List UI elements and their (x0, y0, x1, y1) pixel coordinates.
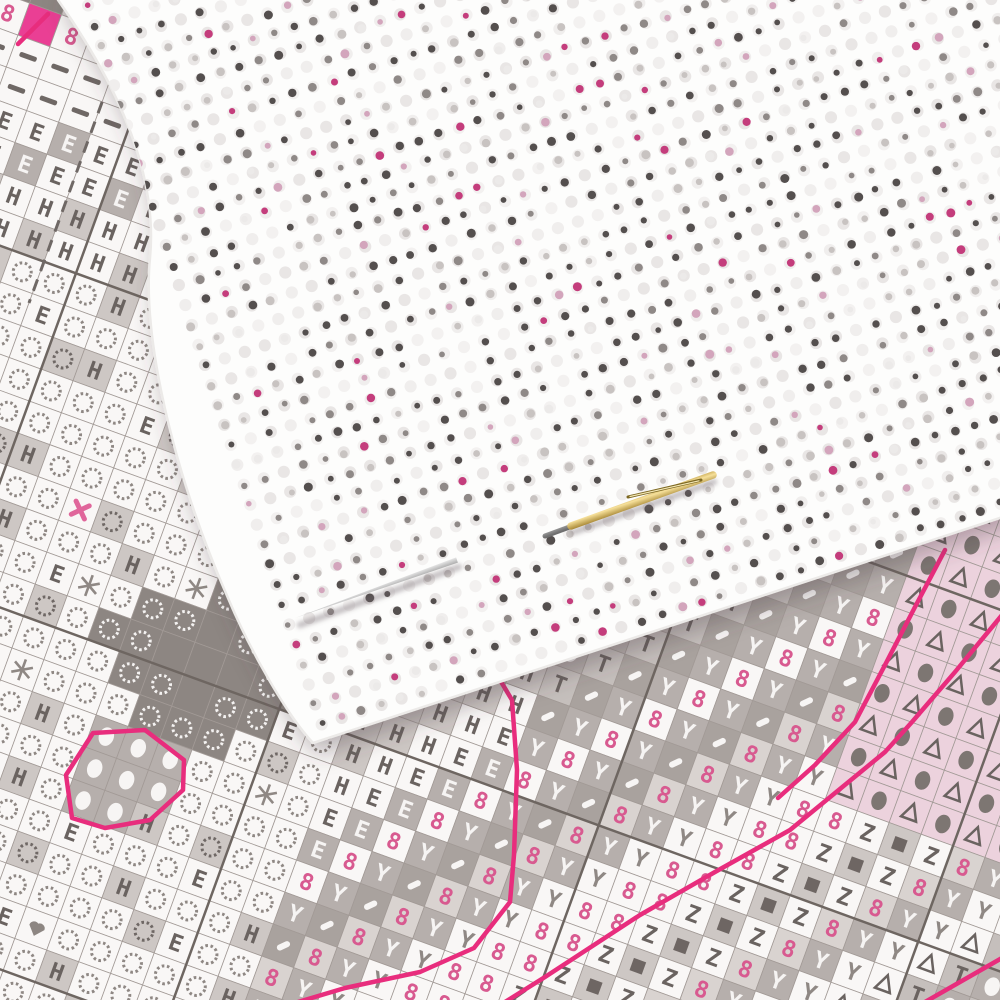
hole-content-dot (759, 244, 767, 252)
canvas-hole (285, 419, 297, 431)
canvas-hole (318, 386, 330, 398)
hole-content-dot (318, 653, 326, 661)
hole-content-dot (715, 39, 723, 47)
hole-content-dot (576, 570, 585, 579)
canvas-hole (449, 587, 461, 599)
hole-content-dot (821, 93, 828, 100)
hole-content-dot (467, 229, 476, 238)
hole-content-dot (602, 165, 610, 173)
hole-content-dot (989, 415, 998, 424)
hole-content-dot (757, 314, 765, 322)
hole-content-dot (905, 355, 911, 361)
hole-content-dot (698, 599, 705, 606)
hole-content-dot (527, 409, 535, 417)
canvas-hole (610, 402, 622, 414)
hole-content-dot (355, 488, 362, 495)
canvas-hole (895, 464, 907, 476)
canvas-hole (929, 364, 941, 376)
hole-content-dot (752, 290, 761, 299)
hole-content-dot (326, 342, 333, 349)
canvas-hole (890, 311, 902, 323)
hole-content-dot (232, 460, 241, 469)
hole-content-dot (911, 438, 920, 447)
hole-content-dot (364, 43, 371, 50)
hole-content-dot (554, 156, 562, 164)
hole-content-dot (799, 230, 808, 239)
hole-content-dot (236, 129, 245, 138)
hole-content-dot (241, 483, 247, 489)
hole-content-dot (917, 325, 925, 333)
hole-content-dot (812, 273, 821, 282)
canvas-hole (464, 361, 476, 373)
canvas-hole (434, 62, 446, 74)
hole-content-dot (501, 465, 508, 472)
canvas-hole (245, 432, 257, 444)
hole-content-dot (576, 85, 584, 93)
hole-content-dot (972, 20, 980, 28)
hole-content-dot (223, 87, 231, 95)
hole-content-dot (717, 593, 723, 599)
hole-content-dot (625, 577, 631, 583)
hole-content-dot (571, 418, 578, 425)
hole-content-dot (893, 179, 901, 187)
canvas-hole (545, 202, 557, 214)
hole-content-dot (429, 308, 436, 315)
hole-content-dot (598, 627, 607, 636)
hole-content-dot (315, 170, 323, 178)
hole-content-dot (427, 442, 434, 449)
canvas-hole (772, 151, 784, 163)
hole-content-dot (923, 415, 932, 424)
hole-content-dot (813, 140, 820, 147)
canvas-hole (892, 45, 904, 57)
hole-content-dot (648, 107, 656, 115)
hole-content-dot (870, 519, 876, 525)
hole-content-dot (337, 581, 345, 589)
hole-content-dot (504, 615, 512, 623)
hole-content-dot (377, 19, 383, 25)
canvas-hole (291, 506, 303, 518)
hole-content-dot (249, 301, 258, 310)
hole-content-dot (394, 75, 402, 83)
hole-content-dot (507, 484, 515, 492)
hole-content-dot (686, 92, 694, 100)
canvas-hole (838, 151, 850, 163)
hole-content-dot (620, 358, 628, 366)
hole-content-dot (822, 162, 828, 168)
canvas-hole (281, 67, 293, 79)
hole-content-dot (354, 221, 363, 230)
hole-content-dot (360, 311, 368, 319)
hole-content-dot (153, 1, 159, 7)
hole-content-dot (420, 624, 427, 631)
hole-content-dot (356, 706, 365, 715)
hole-content-dot (118, 36, 124, 42)
hole-content-dot (461, 541, 468, 548)
hole-content-dot (501, 197, 507, 203)
hole-content-dot (168, 130, 176, 138)
hole-content-dot (700, 396, 707, 403)
hole-content-dot (966, 267, 975, 276)
hole-content-dot (887, 425, 893, 431)
canvas-hole (565, 196, 577, 208)
hole-content-dot (543, 253, 549, 259)
canvas-hole (445, 235, 457, 247)
hole-content-dot (221, 421, 229, 429)
hole-content-dot (520, 257, 527, 264)
canvas-hole (783, 390, 795, 402)
hole-content-dot (637, 483, 645, 491)
canvas-hole (876, 404, 888, 416)
hole-content-dot (828, 312, 835, 319)
hole-content-dot (399, 362, 405, 368)
canvas-hole (717, 323, 729, 335)
hole-content-dot (989, 194, 995, 200)
hole-content-dot (847, 307, 853, 313)
hole-content-dot (262, 409, 269, 416)
hole-content-dot (746, 274, 753, 281)
hole-content-dot (320, 257, 328, 265)
hole-content-dot (809, 55, 815, 61)
hole-content-dot (713, 238, 720, 245)
hole-content-dot (664, 15, 670, 21)
hole-content-dot (443, 151, 451, 159)
hole-content-dot (319, 587, 325, 593)
hole-content-dot (530, 144, 538, 152)
canvas-hole (444, 367, 456, 379)
hole-content-dot (350, 271, 356, 277)
hole-content-dot (480, 206, 487, 213)
hole-content-dot (664, 363, 673, 372)
hole-content-dot (280, 536, 288, 544)
hole-content-dot (811, 538, 817, 544)
hole-content-dot (302, 194, 311, 203)
canvas-hole (495, 660, 507, 672)
canvas-hole (684, 289, 696, 301)
canvas-hole (576, 501, 588, 513)
hole-content-dot (705, 152, 714, 161)
canvas-hole (405, 380, 417, 392)
hole-content-dot (599, 364, 607, 372)
canvas-hole (264, 492, 276, 504)
hole-content-dot (360, 442, 369, 451)
hole-content-dot (895, 534, 904, 543)
canvas-hole (825, 111, 837, 123)
hole-content-dot (610, 603, 616, 609)
hole-content-dot (422, 89, 431, 98)
canvas-hole (737, 316, 749, 328)
canvas-hole (254, 120, 266, 132)
hole-content-dot (622, 158, 628, 164)
canvas-hole (323, 672, 335, 684)
hole-content-dot (707, 217, 715, 225)
canvas-hole (845, 38, 857, 50)
canvas-hole (819, 25, 831, 37)
canvas-hole (379, 234, 391, 246)
hole-content-dot (361, 507, 367, 513)
canvas-hole (279, 266, 291, 278)
hole-content-dot (85, 2, 91, 8)
hole-content-dot (247, 167, 254, 174)
hole-content-dot (635, 264, 643, 272)
hole-content-dot (648, 306, 656, 314)
hole-content-dot (314, 570, 321, 577)
hole-content-dot (169, 61, 176, 68)
hole-content-dot (514, 371, 521, 378)
hole-content-dot (314, 234, 322, 242)
hole-content-dot (387, 388, 395, 396)
hole-content-dot (841, 88, 849, 96)
hole-content-dot (877, 57, 883, 63)
canvas-hole (525, 275, 537, 287)
plastic-canvas-layer (0, 0, 1000, 1000)
hole-content-dot (559, 244, 567, 252)
hole-content-dot (809, 123, 815, 129)
hole-content-dot (332, 693, 339, 700)
canvas-hole (225, 372, 237, 384)
hole-content-dot (540, 317, 547, 324)
canvas-hole (744, 336, 756, 348)
hole-content-dot (864, 433, 873, 442)
canvas-hole (849, 390, 861, 402)
canvas-hole (610, 468, 622, 480)
canvas-hole (863, 364, 875, 376)
canvas-hole (427, 108, 439, 120)
hole-content-dot (395, 344, 403, 352)
hole-content-dot (495, 46, 503, 54)
hole-content-dot (202, 294, 211, 303)
canvas-hole (206, 312, 218, 324)
hole-content-dot (840, 354, 848, 362)
hole-content-dot (860, 80, 868, 88)
hole-content-dot (574, 151, 580, 157)
hole-content-dot (717, 459, 724, 466)
plastic-canvas-sheet (58, 0, 1000, 743)
hole-content-dot (692, 377, 698, 383)
hole-content-dot (468, 31, 475, 38)
hole-content-dot (928, 83, 934, 89)
hole-content-dot (299, 460, 308, 469)
hole-content-dot (595, 145, 602, 152)
hole-content-dot (269, 98, 275, 104)
hole-content-dot (313, 636, 319, 642)
hole-content-dot (356, 92, 362, 98)
hole-content-dot (357, 641, 365, 649)
hole-content-dot (530, 11, 537, 18)
hole-content-dot (480, 535, 486, 541)
hole-content-dot (424, 156, 430, 162)
hole-content-dot (396, 142, 404, 150)
hole-content-dot (792, 412, 798, 418)
hole-content-dot (448, 171, 454, 177)
hole-content-dot (594, 411, 602, 419)
hole-content-dot (261, 540, 269, 548)
hole-content-dot (660, 478, 666, 484)
hole-content-dot (842, 219, 848, 225)
hole-content-dot (470, 99, 476, 105)
hole-content-dot (787, 127, 795, 135)
hole-content-dot (567, 598, 573, 604)
canvas-hole (738, 184, 750, 196)
hole-content-dot (660, 146, 668, 154)
hole-content-dot (840, 19, 848, 27)
hole-content-dot (880, 342, 887, 349)
hole-content-dot (473, 450, 480, 457)
hole-content-dot (650, 457, 659, 466)
hole-content-dot (856, 60, 863, 67)
hole-content-dot (659, 543, 667, 551)
hole-content-dot (980, 374, 987, 381)
hole-content-dot (789, 59, 795, 65)
hole-content-dot (156, 89, 164, 97)
hole-content-dot (335, 360, 344, 369)
hole-content-dot (98, 42, 105, 49)
hole-content-dot (934, 303, 940, 309)
hole-content-dot (775, 222, 781, 228)
hole-content-dot (494, 245, 503, 254)
hole-content-dot (812, 205, 820, 213)
hole-content-dot (767, 200, 773, 206)
hole-content-dot (748, 8, 755, 15)
hole-content-dot (787, 259, 795, 267)
canvas-hole (670, 382, 682, 394)
hole-content-dot (651, 591, 657, 597)
hole-content-dot (394, 208, 403, 217)
hole-content-dot (313, 370, 321, 378)
hole-content-dot (442, 217, 450, 225)
hole-content-dot (558, 443, 566, 451)
hole-content-dot (345, 534, 353, 542)
hole-content-dot (702, 130, 711, 139)
canvas-hole (456, 607, 468, 619)
hole-content-dot (746, 207, 752, 213)
hole-content-dot (550, 71, 556, 77)
hole-content-dot (743, 118, 751, 126)
hole-content-dot (731, 430, 738, 437)
hole-content-dot (489, 91, 495, 97)
hole-content-dot (702, 65, 710, 73)
hole-content-dot (776, 438, 785, 447)
hole-content-dot (411, 51, 417, 57)
hole-content-dot (235, 329, 243, 337)
hole-content-dot (204, 162, 210, 168)
hole-content-dot (642, 87, 648, 93)
hole-content-dot (911, 507, 919, 515)
canvas-hole (605, 183, 617, 195)
hole-content-dot (756, 158, 763, 165)
hole-content-dot (966, 3, 973, 10)
hole-content-dot (541, 118, 550, 127)
canvas-hole (824, 178, 836, 190)
hole-content-dot (554, 488, 561, 495)
hole-content-dot (428, 45, 435, 52)
hole-content-dot (403, 430, 409, 436)
hole-content-dot (482, 271, 488, 277)
hole-content-dot (732, 565, 738, 571)
hole-content-dot (863, 498, 871, 506)
hole-content-dot (477, 670, 485, 678)
hole-content-dot (819, 491, 825, 497)
hole-content-dot (418, 555, 424, 561)
hole-content-dot (861, 215, 868, 222)
canvas-hole (777, 370, 789, 382)
hole-content-dot (382, 103, 390, 111)
canvas-hole (259, 339, 271, 351)
hole-content-dot (937, 521, 945, 529)
hole-content-dot (573, 282, 582, 291)
hole-content-dot (456, 123, 464, 131)
canvas-hole (923, 278, 935, 290)
hole-content-dot (554, 558, 560, 564)
canvas-hole (879, 5, 891, 17)
hole-content-dot (391, 57, 398, 64)
canvas-hole (591, 342, 603, 354)
hole-content-dot (402, 229, 410, 237)
hole-content-dot (653, 525, 660, 532)
hole-content-dot (331, 141, 339, 149)
canvas-hole (690, 442, 702, 454)
canvas-hole (698, 263, 710, 275)
canvas-hole (472, 248, 484, 260)
canvas-hole (385, 320, 397, 332)
canvas-hole (769, 549, 781, 561)
hole-content-dot (222, 23, 230, 31)
hole-content-dot (582, 305, 589, 312)
hole-content-dot (486, 290, 494, 298)
hole-content-dot (917, 459, 923, 465)
hole-content-dot (646, 568, 655, 577)
hole-content-dot (262, 476, 269, 483)
hole-content-dot (379, 568, 387, 576)
hole-content-dot (586, 258, 592, 264)
hole-content-dot (674, 184, 683, 193)
hole-content-dot (685, 158, 694, 167)
hole-content-dot (475, 316, 483, 324)
hole-content-dot (715, 104, 724, 113)
hole-content-dot (633, 396, 641, 404)
hole-content-dot (310, 700, 316, 706)
hole-content-dot (906, 289, 913, 296)
canvas-hole (790, 277, 802, 289)
hole-content-dot (464, 494, 472, 502)
canvas-hole (692, 110, 704, 122)
hole-content-dot (785, 326, 792, 333)
hole-content-dot (605, 449, 613, 457)
hole-content-dot (439, 352, 445, 358)
hole-content-dot (378, 369, 387, 378)
hole-content-dot (91, 23, 99, 31)
hole-content-dot (872, 253, 879, 260)
hole-content-dot (829, 466, 838, 475)
canvas-hole (564, 395, 576, 407)
canvas-hole (958, 46, 970, 58)
hole-content-dot (897, 199, 906, 208)
hole-content-dot (743, 470, 751, 478)
canvas-hole (731, 296, 743, 308)
hole-content-dot (274, 581, 281, 588)
hole-content-dot (354, 358, 360, 364)
canvas-hole (842, 503, 854, 515)
hole-content-dot (494, 378, 501, 385)
hole-content-dot (396, 694, 403, 701)
hole-content-dot (870, 103, 876, 109)
canvas-hole (293, 174, 305, 186)
canvas-hole (207, 113, 219, 125)
hole-content-dot (186, 35, 192, 41)
hole-content-dot (271, 30, 277, 36)
hole-content-dot (951, 427, 960, 436)
hole-content-dot (460, 211, 467, 218)
